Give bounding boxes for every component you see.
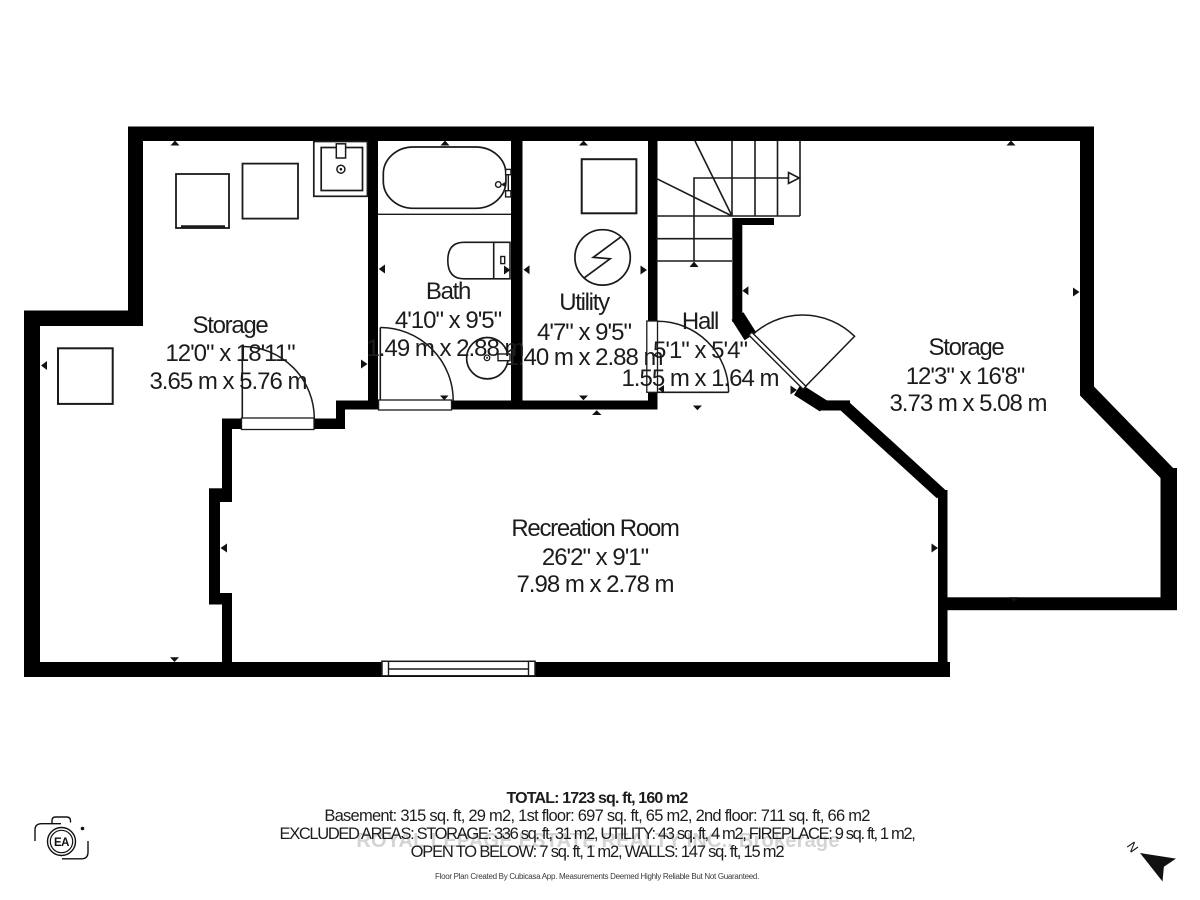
svg-text:7.98 m x 2.78 m: 7.98 m x 2.78 m xyxy=(516,571,673,598)
svg-text:OPEN TO BELOW: 7 sq. ft, 1 m2,: OPEN TO BELOW: 7 sq. ft, 1 m2, WALLS: 14… xyxy=(411,843,785,861)
svg-text:Recreation Room: Recreation Room xyxy=(511,515,679,542)
svg-text:26'2" x 9'1": 26'2" x 9'1" xyxy=(542,544,649,571)
svg-text:4'10" x 9'5": 4'10" x 9'5" xyxy=(395,307,502,334)
svg-text:1.49 m x 2.88 m: 1.49 m x 2.88 m xyxy=(366,335,523,362)
svg-text:3.73 m x 5.08 m: 3.73 m x 5.08 m xyxy=(889,390,1046,417)
svg-text:Floor Plan Created By Cubicasa: Floor Plan Created By Cubicasa App. Meas… xyxy=(435,872,759,881)
svg-text:Storage: Storage xyxy=(193,312,269,339)
svg-text:12'0" x 18'11": 12'0" x 18'11" xyxy=(165,340,295,367)
svg-text:4'7" x 9'5": 4'7" x 9'5" xyxy=(537,319,631,346)
svg-text:Bath: Bath xyxy=(426,278,470,305)
svg-text:EA: EA xyxy=(54,837,69,849)
svg-text:N: N xyxy=(1124,839,1142,855)
svg-text:EXCLUDED AREAS: STORAGE: 336 s: EXCLUDED AREAS: STORAGE: 336 sq. ft, 31 … xyxy=(280,825,916,843)
svg-text:Storage: Storage xyxy=(929,334,1005,361)
svg-text:Basement: 315 sq. ft, 29 m2, 1: Basement: 315 sq. ft, 29 m2, 1st floor: … xyxy=(324,807,870,825)
svg-text:1.55 m x 1.64 m: 1.55 m x 1.64 m xyxy=(621,365,778,392)
svg-text:5'1" x 5'4": 5'1" x 5'4" xyxy=(653,337,747,364)
svg-text:Utility: Utility xyxy=(559,289,610,316)
svg-text:12'3" x 16'8": 12'3" x 16'8" xyxy=(906,363,1025,390)
svg-text:Hall: Hall xyxy=(682,308,718,335)
svg-text:3.65 m x 5.76 m: 3.65 m x 5.76 m xyxy=(149,368,306,395)
svg-text:TOTAL: 1723 sq. ft, 160 m2: TOTAL: 1723 sq. ft, 160 m2 xyxy=(507,790,689,807)
